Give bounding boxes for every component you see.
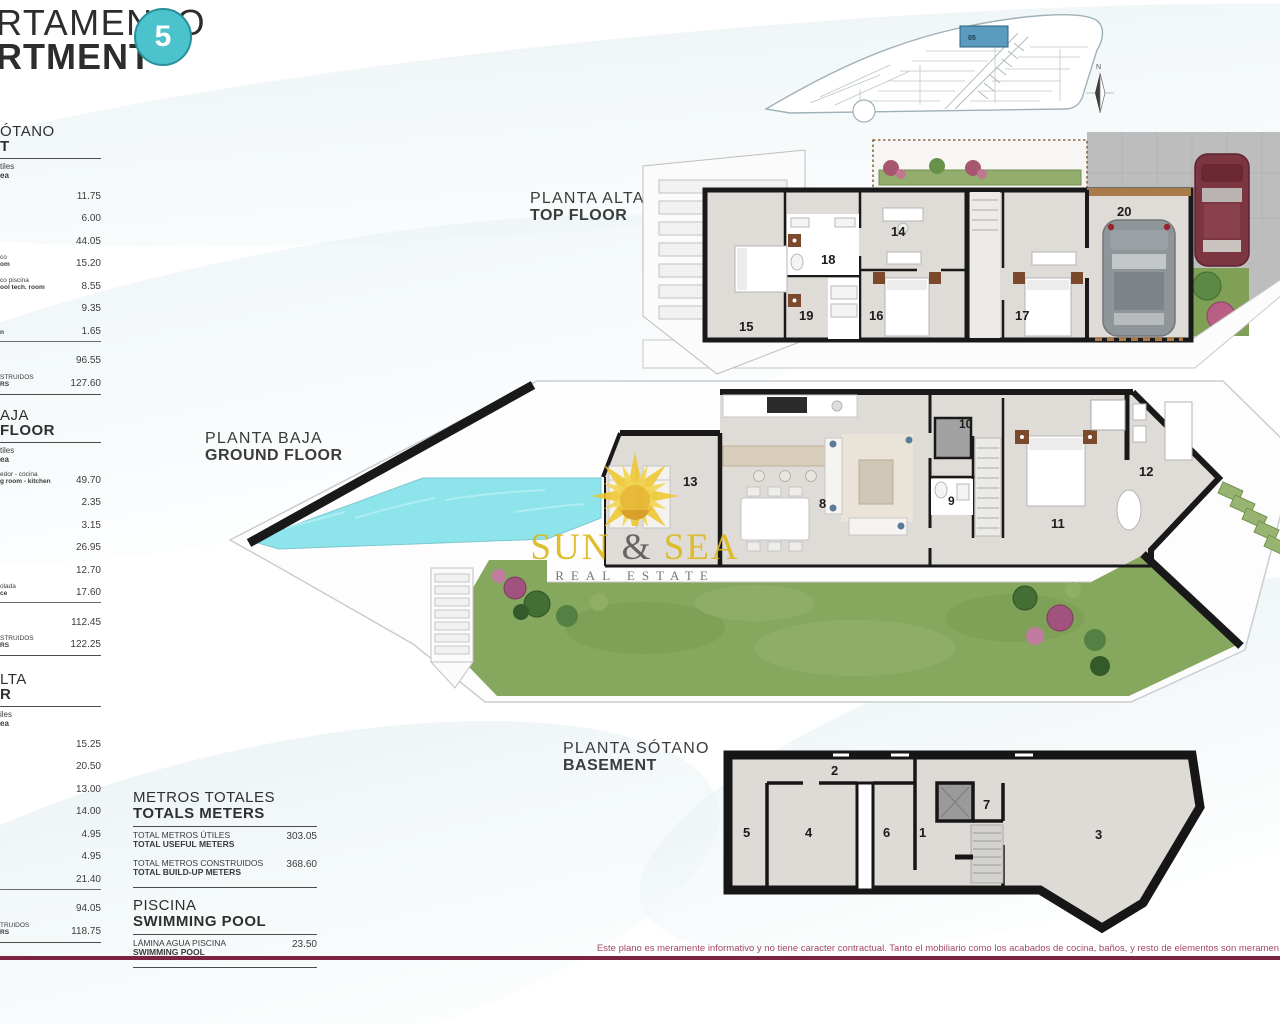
watermark-subtitle: REAL ESTATE	[520, 568, 750, 584]
room-number: 1	[919, 825, 926, 840]
staircase	[975, 438, 1001, 536]
area-row: n1.65	[0, 315, 101, 338]
area-total-row: 94.05	[0, 893, 101, 916]
room-number: 2	[831, 763, 838, 778]
wall-channel	[857, 783, 873, 890]
watermark-title: SUN & SEA	[520, 531, 750, 565]
room-number: 10	[959, 417, 973, 431]
room-number: 18	[821, 252, 835, 267]
divider	[133, 934, 317, 935]
divider	[0, 442, 101, 443]
section-title: ÓTANO T	[0, 124, 101, 154]
area-row: 6.00	[0, 203, 101, 226]
label-basement: PLANTA SÓTANO BASEMENT	[563, 740, 710, 774]
room-number: 16	[869, 308, 883, 323]
section-title: LTA R	[0, 672, 101, 702]
area-row: 11.75	[0, 180, 101, 203]
pergola-beam	[1087, 188, 1191, 196]
area-row: 4.95	[0, 818, 101, 841]
divider	[133, 967, 317, 968]
disclaimer-text: Este plano es meramente informativo y no…	[379, 943, 1279, 954]
room-number: 5	[743, 825, 750, 840]
site-plan: 05 N	[760, 5, 1116, 125]
divider	[0, 706, 101, 707]
area-total-row: STRUIDOSRS122.25	[0, 629, 101, 652]
staircase	[971, 825, 1003, 883]
divider	[133, 826, 317, 827]
area-row: 21.40	[0, 863, 101, 886]
area-row: oladace17.60	[0, 577, 101, 600]
footer-rule	[0, 956, 1280, 960]
label-top-floor: PLANTA ALTA TOP FLOOR	[530, 190, 645, 224]
room-number: 6	[883, 825, 890, 840]
area-row: 20.50	[0, 751, 101, 774]
room-number: 7	[983, 797, 990, 812]
area-row: 4.95	[0, 841, 101, 864]
unit-number: 5	[155, 20, 172, 54]
section-title: AJA FLOOR	[0, 408, 101, 438]
sun-logo-icon	[580, 448, 690, 526]
area-row: 15.25	[0, 728, 101, 751]
area-row: 13.00	[0, 773, 101, 796]
divider	[0, 602, 101, 603]
sunsea-watermark: SUN & SEA REAL ESTATE	[520, 448, 750, 584]
red-car	[1195, 154, 1249, 266]
area-total-row: 96.55	[0, 345, 101, 368]
room-number: 14	[891, 224, 906, 239]
room-number: 8	[819, 496, 826, 511]
area-row: 9.35	[0, 293, 101, 316]
divider	[0, 889, 101, 890]
divider	[133, 887, 317, 888]
totals-row: TOTAL METROS ÚTILESTOTAL USEFUL METERS 3…	[133, 831, 317, 855]
area-row: 3.15	[0, 509, 101, 532]
area-table-basement: ÓTANO T tiles ea 11.75 6.00 44.05 coom15…	[0, 124, 101, 398]
site-boundary	[766, 15, 1103, 113]
area-total-row: 112.45	[0, 606, 101, 629]
north-label: N	[1096, 64, 1101, 71]
pool-title: PISCINA SWIMMING POOL	[133, 898, 317, 930]
basement-plan: 1 2 3 4 5 6 7	[715, 745, 1215, 950]
area-row: co piscinaool tech. room8.55	[0, 270, 101, 293]
divider	[0, 394, 101, 395]
garden-stairs	[431, 568, 473, 688]
area-table-ground: AJA FLOOR tiles ea edor - cocinag room -…	[0, 408, 101, 659]
divider	[0, 341, 101, 342]
unit-number-badge: 5	[134, 8, 192, 66]
bush	[1193, 272, 1221, 300]
area-total-row: STRUIDOSRS127.60	[0, 367, 101, 390]
apartment-plan-page: RTAMENTO RTMENT 5 ÓTANO T tiles ea 11.75…	[0, 0, 1280, 1024]
room-number: 17	[1015, 308, 1029, 323]
area-row: 44.05	[0, 225, 101, 248]
area-row: 2.35	[0, 487, 101, 510]
room-number: 11	[1051, 516, 1065, 531]
area-row: 26.95	[0, 532, 101, 555]
gray-car	[1103, 220, 1175, 336]
room-number: 12	[1139, 464, 1153, 479]
area-total-row: TRUIDOSRS118.75	[0, 915, 101, 938]
basement-outline	[728, 755, 1200, 928]
area-row: 14.00	[0, 796, 101, 819]
plot-number: 05	[968, 35, 976, 42]
room-number: 3	[1095, 827, 1102, 842]
section-subheader: iles ea	[0, 710, 101, 728]
area-table-top: LTA R iles ea 15.25 20.50 13.00 14.00 4.…	[0, 672, 101, 946]
divider	[0, 655, 101, 656]
area-row: coom15.20	[0, 248, 101, 271]
section-subheader: tiles ea	[0, 162, 101, 180]
area-row: 12.70	[0, 554, 101, 577]
divider	[0, 942, 101, 943]
area-row: edor - cocinag room - kitchen49.70	[0, 464, 101, 487]
room-number: 15	[739, 319, 753, 334]
roof-terrace	[873, 140, 1087, 192]
room-number: 9	[948, 494, 955, 508]
section-subheader: tiles ea	[0, 446, 101, 464]
totals-block: METROS TOTALES TOTALS METERS TOTAL METRO…	[133, 790, 317, 971]
totals-row: TOTAL METROS CONSTRUIDOSTOTAL BUILD-UP M…	[133, 859, 317, 883]
room-number: 20	[1117, 204, 1131, 219]
divider	[0, 158, 101, 159]
room-number: 19	[799, 308, 813, 323]
totals-title: METROS TOTALES TOTALS METERS	[133, 790, 317, 822]
hallway	[970, 192, 1000, 338]
room-number: 4	[805, 825, 813, 840]
site-notch	[853, 100, 875, 122]
